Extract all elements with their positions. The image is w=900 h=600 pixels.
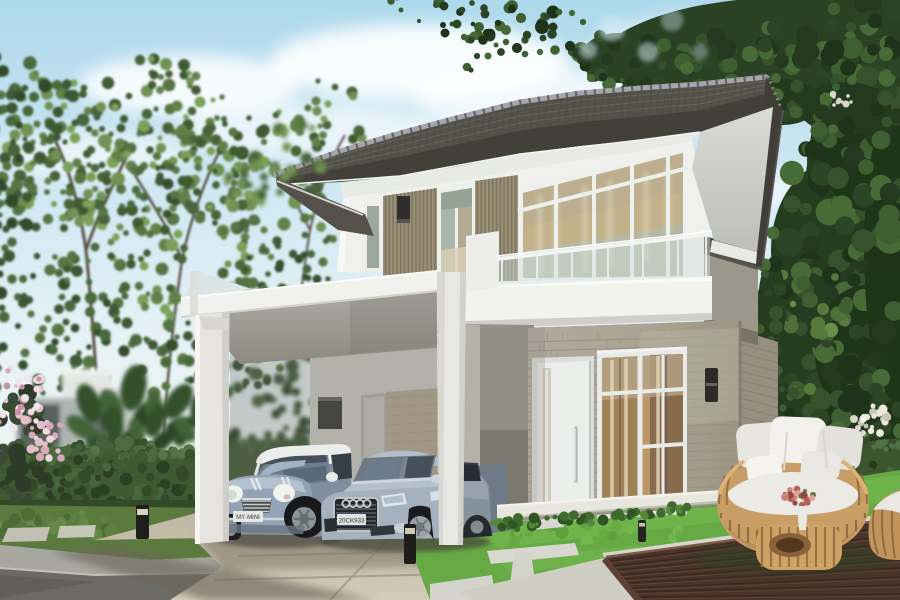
svg-text:MY·MINI: MY·MINI	[236, 515, 260, 521]
svg-text:20CK933: 20CK933	[339, 518, 365, 525]
